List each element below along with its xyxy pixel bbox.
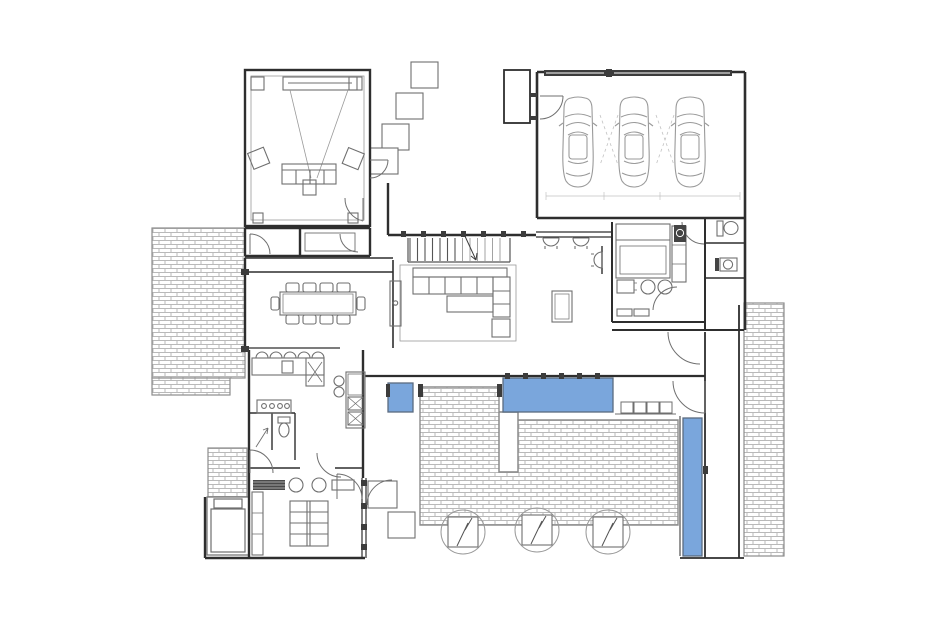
rear-stepping-stones <box>368 481 415 538</box>
sectional-sofa <box>413 268 510 337</box>
staircase <box>408 234 510 262</box>
theater-sofa <box>282 164 336 184</box>
car-icon <box>559 97 597 187</box>
vanity-dark <box>674 225 686 242</box>
kitchen <box>252 352 365 447</box>
powder-room <box>256 417 290 447</box>
bed <box>616 224 670 278</box>
basin <box>312 478 326 492</box>
living-room <box>390 238 602 341</box>
deck-channel-walkway <box>499 412 518 472</box>
window-sill <box>617 309 632 316</box>
folding-table <box>290 501 328 546</box>
corner-carousel <box>334 387 344 397</box>
corner-carousel <box>334 376 344 386</box>
tree-icon <box>441 510 485 554</box>
floor-plan-sheet <box>0 0 940 626</box>
dining-room <box>271 283 365 324</box>
pool-segment-wide <box>503 378 613 412</box>
pool-segment-small <box>388 383 413 412</box>
parked-cars <box>559 97 709 187</box>
island-stools <box>256 352 324 358</box>
counter-end <box>332 480 354 490</box>
projection-screen <box>283 77 357 90</box>
side-table <box>552 291 572 322</box>
guest-suite <box>616 221 738 316</box>
right-terrace-paving <box>744 303 784 556</box>
car-icon <box>671 97 709 187</box>
projection-beam <box>290 90 348 178</box>
left-terrace-paving <box>152 228 247 500</box>
car-icon <box>615 97 653 187</box>
coffee-table <box>447 296 493 312</box>
window-sill <box>634 309 649 316</box>
planter-spa <box>207 497 249 555</box>
outdoor-areas <box>152 62 784 556</box>
cabinet-column <box>252 492 263 555</box>
area-rug <box>400 265 516 341</box>
tree-icon <box>515 508 559 552</box>
kitchen-island <box>252 358 324 386</box>
basin <box>289 478 303 492</box>
cooktop-counter <box>257 400 291 413</box>
garage <box>544 70 740 200</box>
dresser-and-stools <box>617 280 672 294</box>
pool-segment-lap <box>683 418 702 556</box>
pool-bench <box>615 402 676 414</box>
wc-sink <box>715 258 737 271</box>
dining-table <box>280 292 356 315</box>
laundry-room <box>252 478 354 555</box>
dimension-line <box>546 192 740 200</box>
floor-plan-drawing <box>0 0 940 626</box>
speaker-icon <box>248 77 365 223</box>
tree-icon <box>586 510 630 554</box>
home-theater-room <box>248 76 365 251</box>
stair-direction-arrow <box>464 234 477 260</box>
wall-console <box>543 238 602 268</box>
tv-cabinet <box>390 281 401 326</box>
wc-toilet <box>717 221 738 236</box>
entry-stepping-stones <box>370 62 438 174</box>
